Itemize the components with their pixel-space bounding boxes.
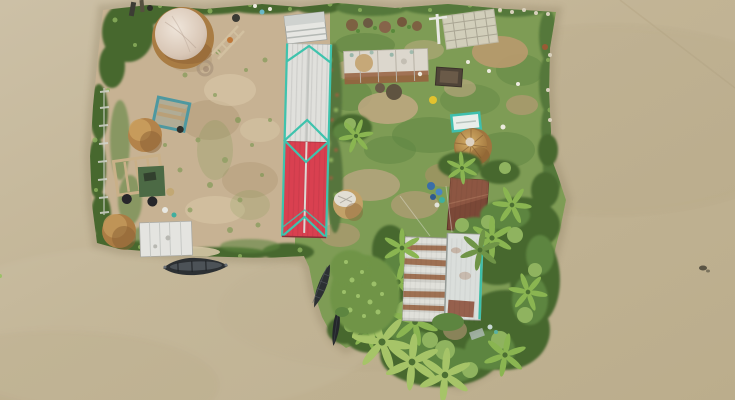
house-corrugation [402, 237, 483, 324]
dark-trough [435, 67, 462, 87]
white-shed-roof [139, 221, 192, 257]
top-white-shed [284, 12, 327, 44]
yellow-watering-can [429, 96, 437, 104]
long-building [278, 11, 332, 238]
brown-animal [542, 44, 548, 50]
aerial-photo [0, 0, 735, 400]
veg-over-canoe [335, 307, 349, 317]
teal-scrap [494, 330, 498, 334]
tin-scrap [488, 325, 493, 330]
trellis-net [442, 9, 498, 49]
teal-bucket [172, 213, 177, 218]
dome-haystack [152, 7, 214, 69]
white-bucket [162, 207, 168, 213]
straw-pile [355, 54, 373, 72]
screenshot-root [0, 0, 735, 400]
